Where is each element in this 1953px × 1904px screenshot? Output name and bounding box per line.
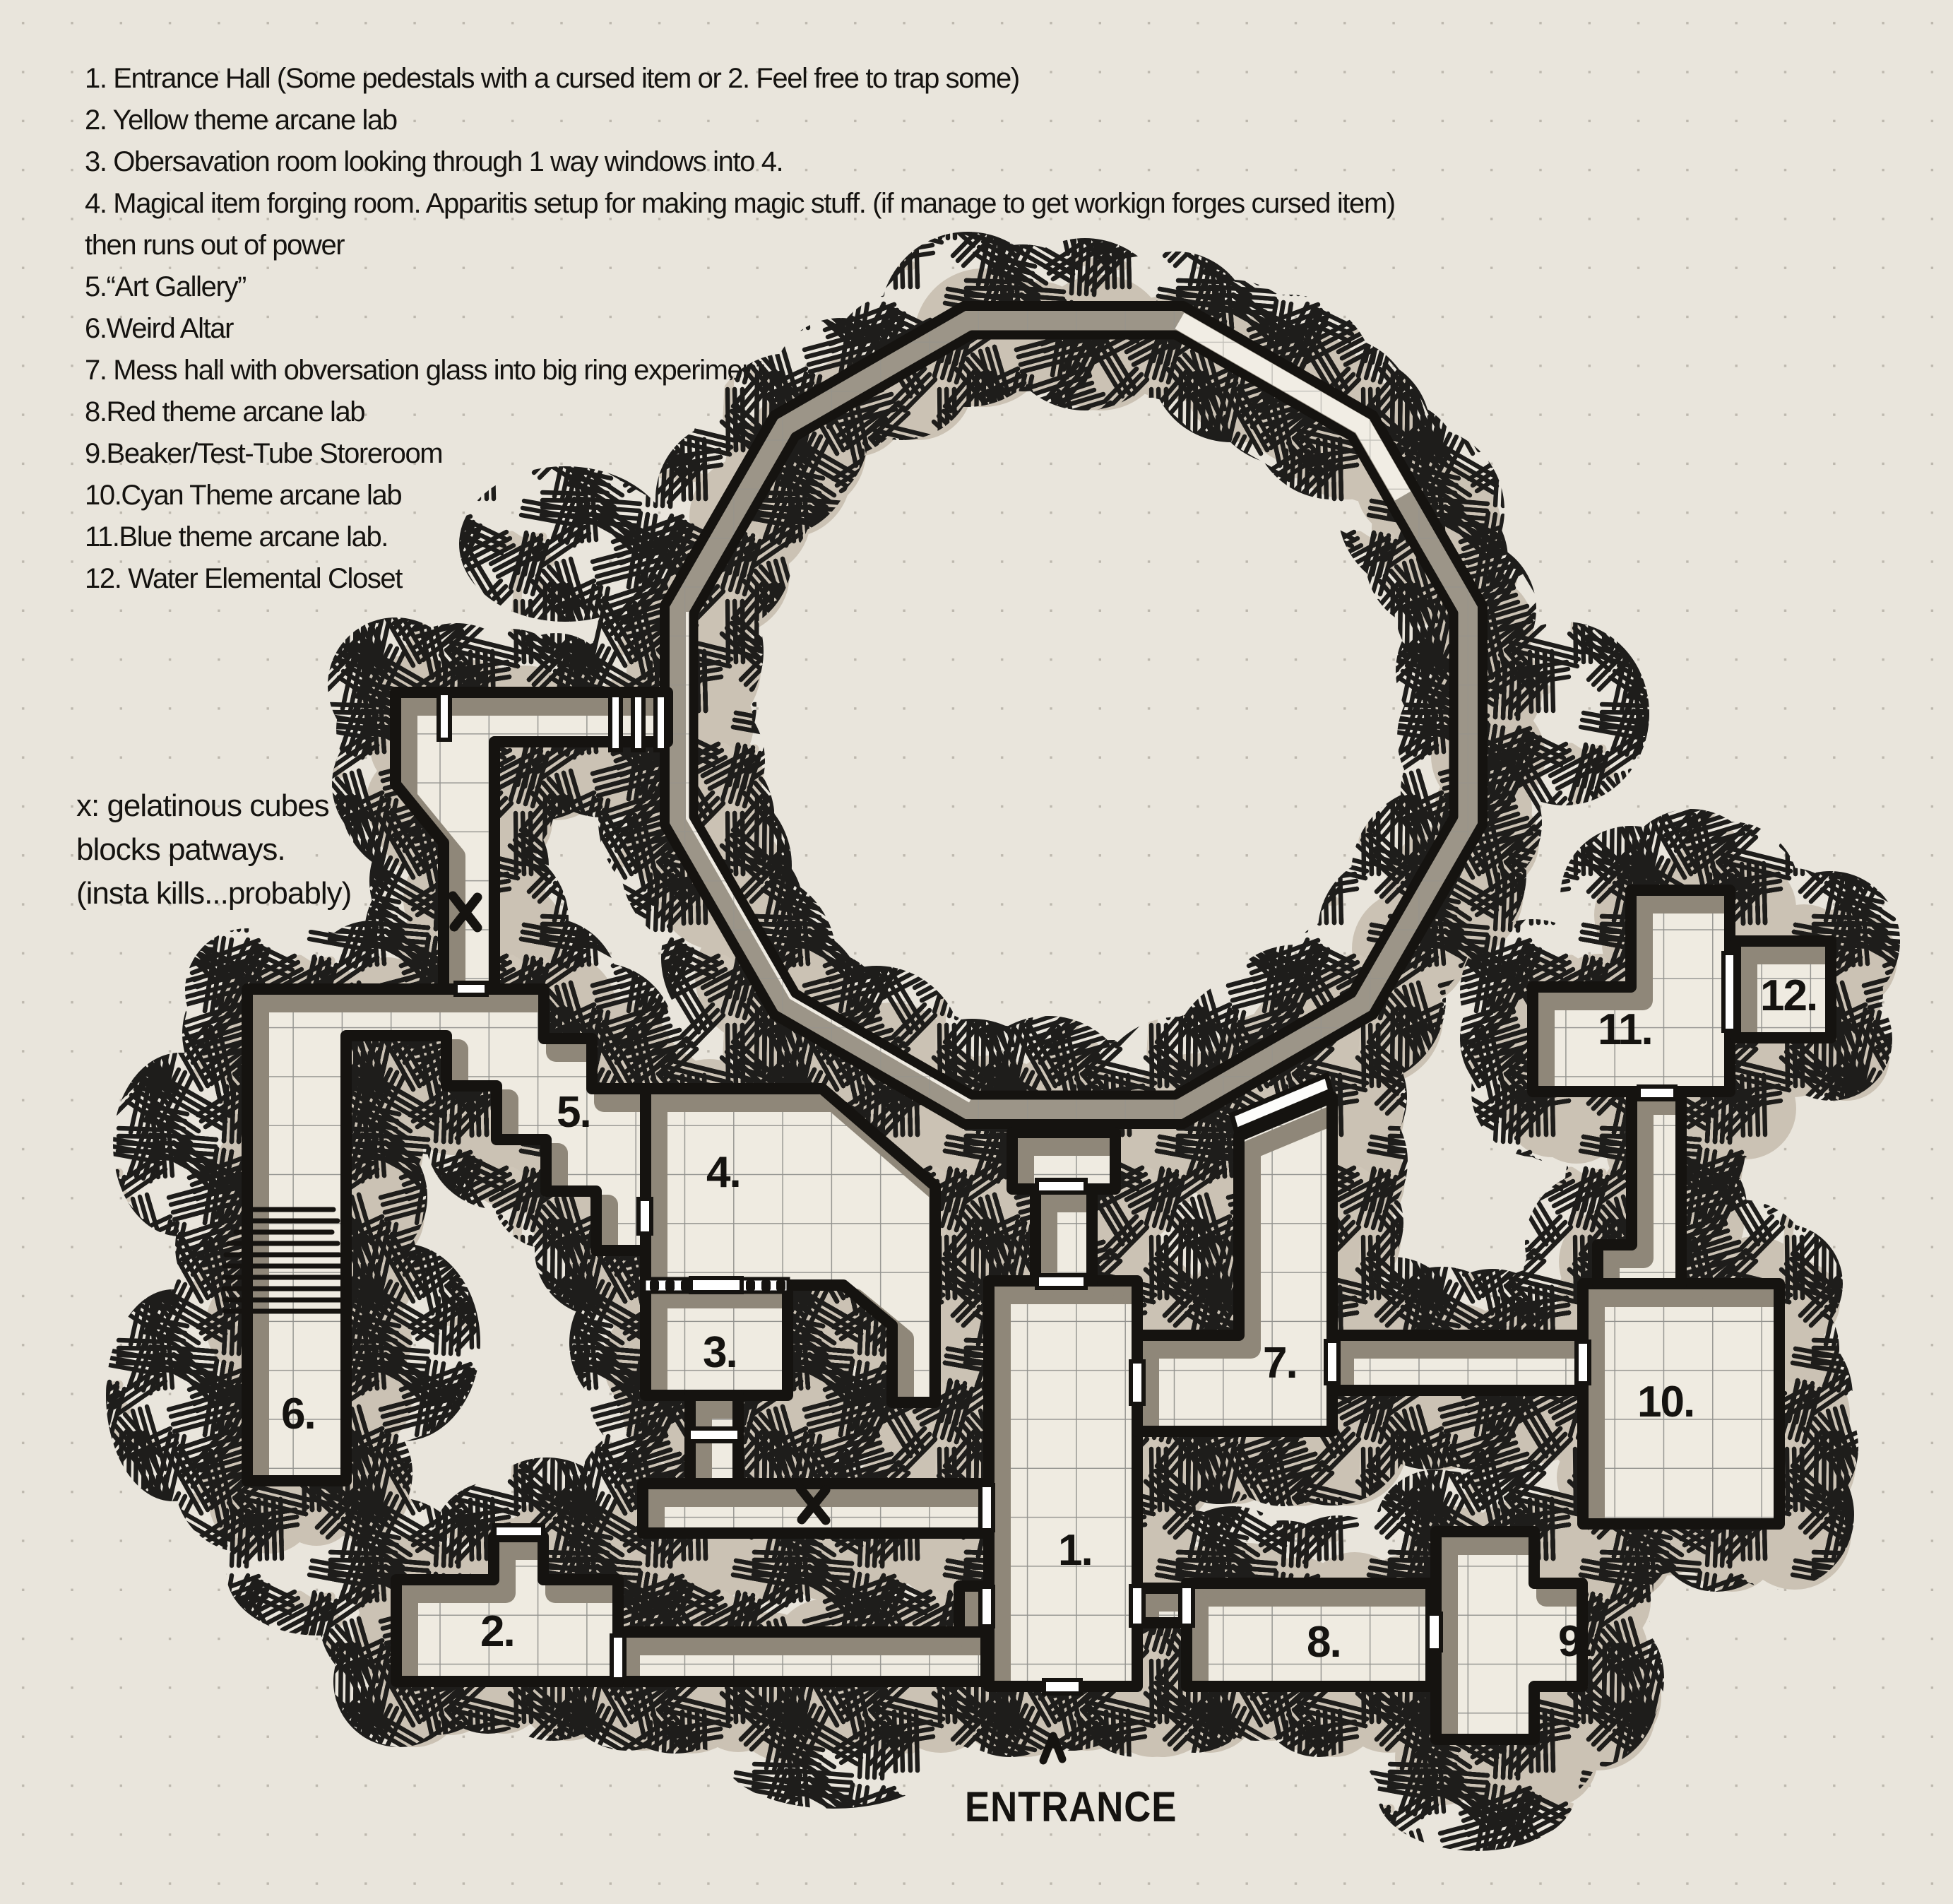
svg-text:4. Magical item forging room.: 4. Magical item forging room. Apparitis … [85, 188, 1395, 219]
svg-text:(insta kills...probably): (insta kills...probably) [76, 876, 351, 911]
svg-text:2.: 2. [480, 1607, 514, 1656]
svg-text:5.“Art Gallery”: 5.“Art Gallery” [85, 271, 246, 302]
svg-text:4.: 4. [706, 1148, 740, 1197]
svg-text:10.: 10. [1637, 1378, 1694, 1426]
svg-text:6.Weird Altar: 6.Weird Altar [85, 313, 234, 344]
svg-text:7.: 7. [1263, 1339, 1297, 1388]
svg-text:12. Water Elemental Closet: 12. Water Elemental Closet [85, 563, 403, 594]
svg-text:7. Mess hall with obversation: 7. Mess hall with obversation glass into… [85, 355, 764, 386]
svg-text:2. Yellow theme arcane lab: 2. Yellow theme arcane lab [85, 105, 397, 136]
svg-text:11.: 11. [1598, 1005, 1652, 1054]
svg-text:11.Blue theme arcane lab.: 11.Blue theme arcane lab. [85, 521, 388, 552]
svg-text:1.: 1. [1058, 1526, 1092, 1575]
svg-text:10.Cyan Theme arcane lab: 10.Cyan Theme arcane lab [85, 480, 401, 511]
svg-text:x: gelatinous cubes: x: gelatinous cubes [76, 788, 329, 823]
svg-text:9.: 9. [1558, 1617, 1592, 1666]
svg-text:5.: 5. [557, 1088, 590, 1137]
svg-text:12.: 12. [1760, 971, 1817, 1020]
svg-text:3.: 3. [703, 1328, 737, 1377]
svg-text:blocks patways.: blocks patways. [76, 832, 285, 867]
svg-text:1. Entrance Hall (Some pedesta: 1. Entrance Hall (Some pedestals with a … [85, 63, 1019, 94]
svg-text:9.Beaker/Test-Tube Storeroom: 9.Beaker/Test-Tube Storeroom [85, 438, 442, 469]
svg-text:6.: 6. [281, 1390, 315, 1438]
svg-text:ENTRANCE: ENTRANCE [965, 1783, 1177, 1831]
svg-text:then runs out of power: then runs out of power [85, 230, 345, 261]
svg-text:8.: 8. [1307, 1618, 1341, 1667]
svg-text:3. Obersavation room looking t: 3. Obersavation room looking through 1 w… [85, 146, 783, 177]
svg-text:8.Red theme arcane lab: 8.Red theme arcane lab [85, 396, 364, 427]
